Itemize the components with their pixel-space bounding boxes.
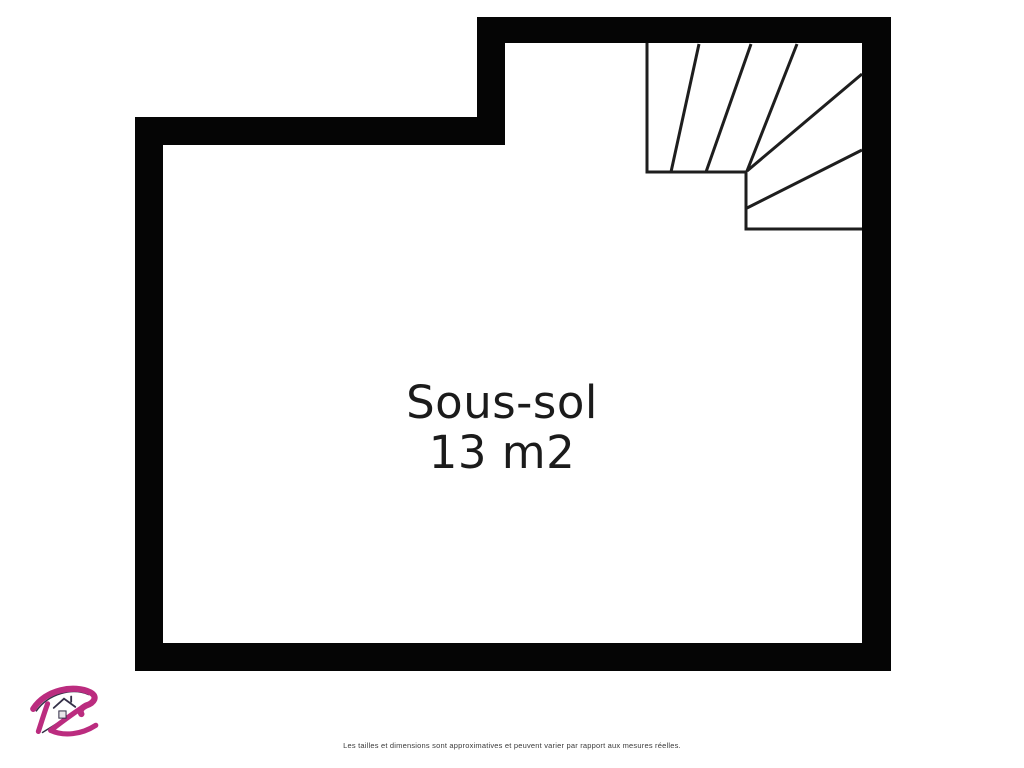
logo-window-icon: [59, 711, 66, 718]
room-name: Sous-sol: [302, 378, 702, 428]
floorplan-page: Sous-sol 13 m2 Les tailles et dimensions…: [0, 0, 1024, 768]
stair-tread-line: [671, 44, 699, 172]
stair-tread-line: [747, 150, 862, 208]
room-area: 13 m2: [302, 428, 702, 478]
stair-tread-line: [747, 44, 797, 171]
agency-logo-r-icon: [23, 682, 105, 744]
wall-outline: [135, 17, 891, 671]
staircase: [647, 43, 862, 229]
stair-tread-line: [706, 44, 751, 172]
disclaimer-text: Les tailles et dimensions sont approxima…: [0, 741, 1024, 750]
stair-tread-line: [747, 74, 862, 171]
room-label: Sous-sol 13 m2: [302, 378, 702, 478]
